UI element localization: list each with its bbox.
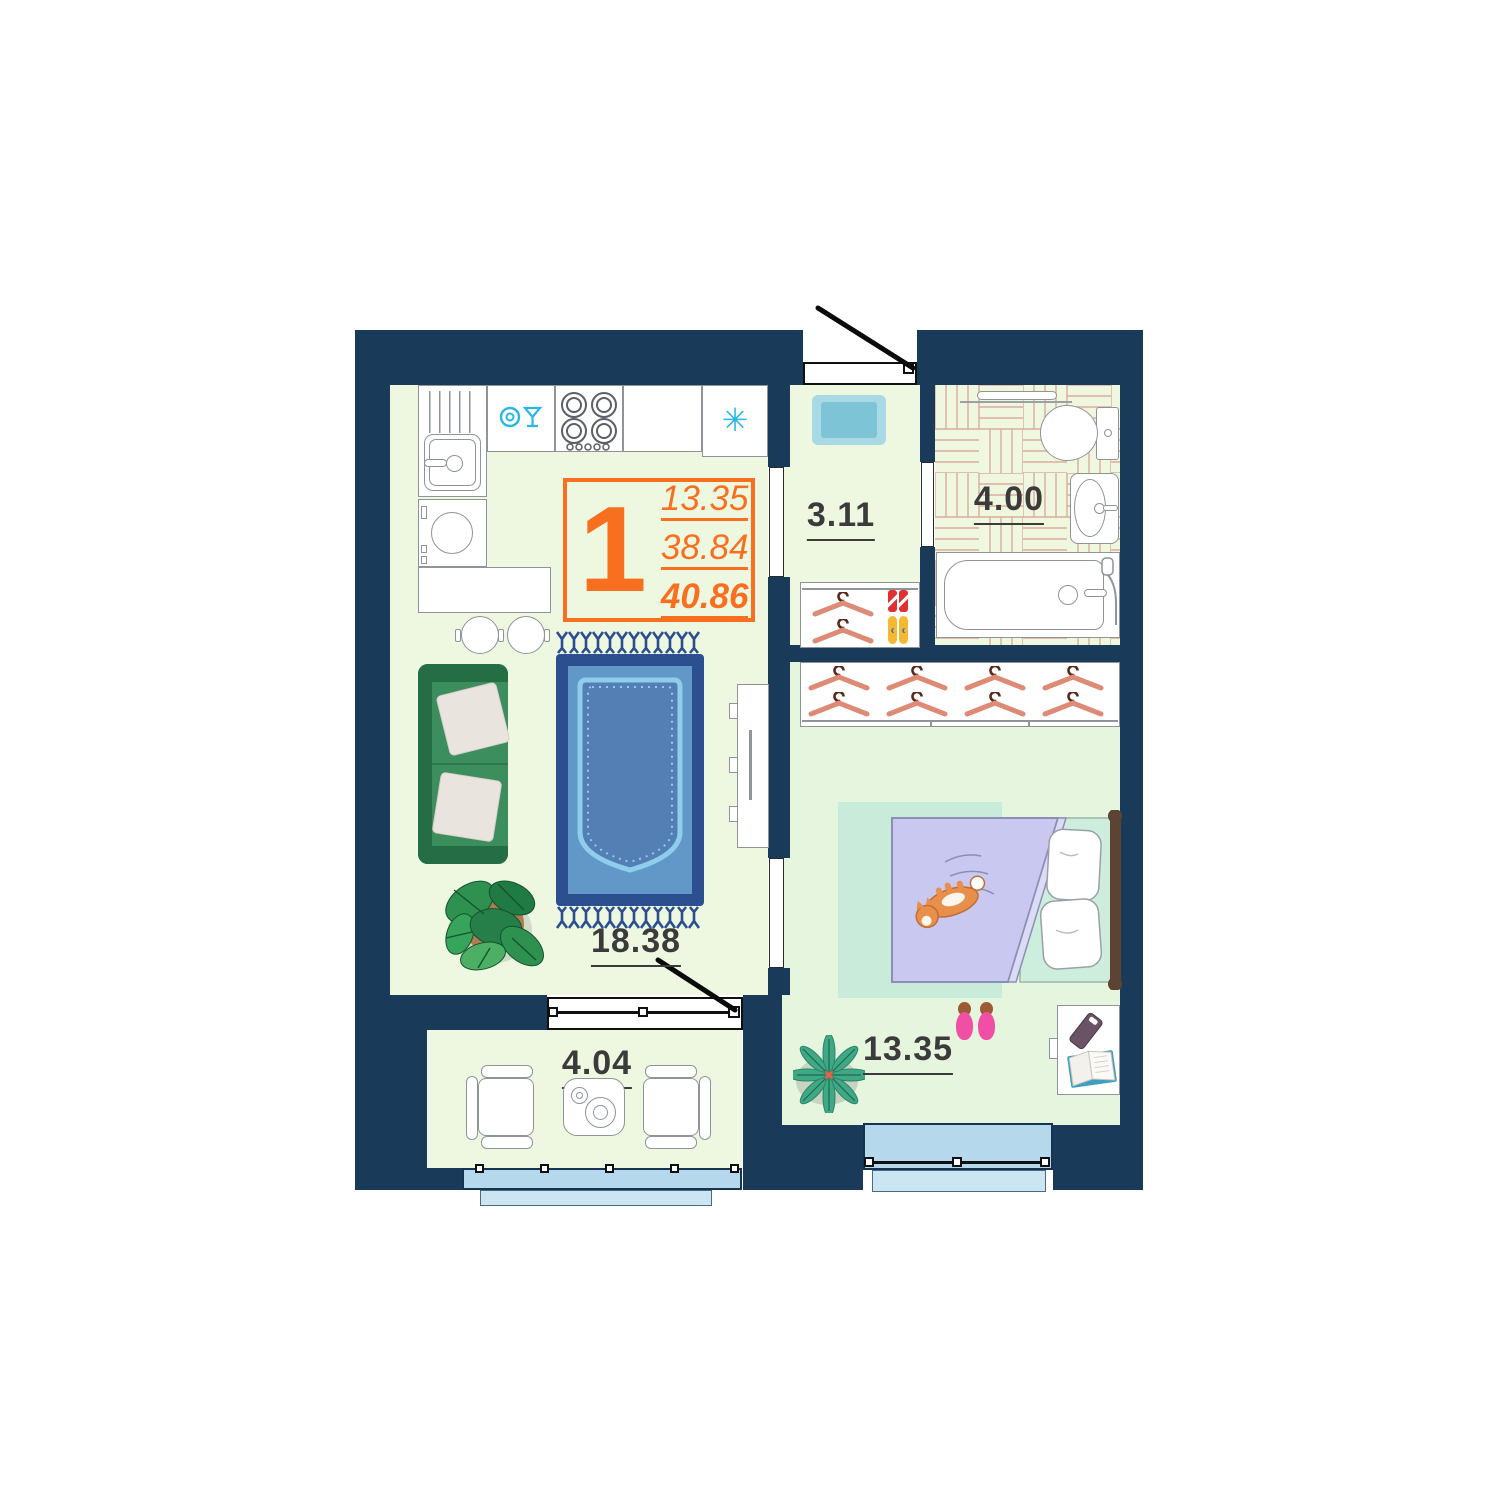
tv-console-handle xyxy=(749,730,752,800)
tv-bracket xyxy=(729,806,738,822)
label-kitchen-living: 18.38 xyxy=(591,922,681,967)
kitchen-stool-handle xyxy=(455,629,461,642)
bathtub-inner xyxy=(944,560,1104,630)
sofa-seat-divider xyxy=(432,763,508,765)
balcony-door-frame-mark xyxy=(638,1007,648,1017)
wall-inner-vertical-c xyxy=(768,968,790,995)
balcony-chair-left-armrest xyxy=(481,1065,533,1078)
hanger-icon xyxy=(812,619,874,644)
balcony-chair-right-armrest xyxy=(645,1136,697,1149)
floor-plan-canvas: ✳ 1 13.35 38.84 40.86 xyxy=(0,0,1500,1500)
wall-balcony-left xyxy=(355,1030,427,1190)
wardrobe-front-line xyxy=(802,720,1118,722)
wall-bedroom-bottom-a xyxy=(782,1125,863,1190)
wall-balcony-foot xyxy=(427,1168,462,1190)
wardrobe-door-tick xyxy=(930,720,932,727)
wall-living-bottom xyxy=(355,995,547,1030)
slipper xyxy=(899,590,908,612)
balcony-chair-left-seat xyxy=(478,1078,534,1136)
sofa-back xyxy=(418,664,432,864)
wall-hall-bath-upper xyxy=(920,385,935,462)
washing-machine-drum xyxy=(431,512,473,554)
slipper-pink xyxy=(956,1002,973,1040)
balcony-chair-right-armrest xyxy=(645,1065,697,1078)
wall-inner-vertical-b xyxy=(768,577,790,858)
hanger-icon xyxy=(808,692,870,717)
total-area-value: 40.86 xyxy=(661,579,749,619)
info-box: 1 13.35 38.84 40.86 xyxy=(563,478,755,622)
bedroom-plant-icon xyxy=(793,1035,865,1113)
entrance-door-swing-line xyxy=(808,300,920,372)
flipflop: ‹ xyxy=(899,616,908,644)
balcony-cup-large-inner xyxy=(593,1105,608,1120)
wall-right xyxy=(1120,330,1143,1190)
wall-bedroom-bottom-b xyxy=(1053,1125,1143,1190)
hanger-icon xyxy=(808,666,870,691)
slipper-pink xyxy=(978,1002,995,1040)
wall-left xyxy=(355,330,390,1030)
slippers-red-icon xyxy=(888,590,910,612)
bedroom-window-frame-mark xyxy=(864,1157,874,1167)
tv-console xyxy=(737,684,769,848)
bathtub-drain xyxy=(1058,585,1078,605)
sofa xyxy=(418,664,508,864)
hanger-icon xyxy=(886,692,948,717)
bathtub-shower-hose xyxy=(1098,556,1120,634)
hanger-icon xyxy=(886,666,948,691)
closet-hangers xyxy=(812,592,874,644)
hanger-icon xyxy=(812,592,874,617)
balcony-outer-sill xyxy=(480,1190,712,1206)
monstera-plant-icon xyxy=(438,872,550,980)
stove-burners xyxy=(555,385,623,452)
living-room-rug xyxy=(548,630,712,930)
desk-chair-back xyxy=(1049,1038,1058,1059)
hanger-icon xyxy=(964,692,1026,717)
wardrobe-door-tick xyxy=(1028,720,1030,727)
wall-bedroom-left xyxy=(743,995,782,1190)
wardrobe-hangers xyxy=(808,666,1120,717)
towel-rail xyxy=(977,391,1057,400)
bathroom-sink-faucet-spout xyxy=(1103,505,1118,511)
towel-rail-line xyxy=(960,401,1072,403)
kitchen-faucet-handle xyxy=(424,459,447,467)
fridge-snowflake-icon: ✳ xyxy=(718,402,752,438)
door-hallway-living xyxy=(769,467,784,577)
slippers-pink-icon xyxy=(956,1002,996,1042)
wall-top-right xyxy=(917,330,1143,385)
balcony-glazing xyxy=(462,1168,742,1190)
tv-bracket xyxy=(729,757,738,773)
wall-top-left xyxy=(355,330,803,385)
kitchen-counter-low xyxy=(418,567,551,613)
hanger-icon xyxy=(1042,666,1104,691)
door-bathroom xyxy=(921,462,934,547)
sofa-cushion xyxy=(432,772,503,843)
toilet-button xyxy=(1104,429,1112,437)
washing-machine-detail xyxy=(421,506,427,519)
flipflops-icon: ‹ ‹ xyxy=(888,616,910,644)
living-area-value: 13.35 xyxy=(661,481,749,521)
washing-machine-detail xyxy=(421,545,427,553)
balcony-chair-left-armrest xyxy=(481,1136,533,1149)
balcony-chair-right-back xyxy=(699,1076,711,1140)
bedroom-window-frame-mark xyxy=(1040,1157,1050,1167)
dishwasher-icon xyxy=(499,405,545,431)
label-hallway: 3.11 xyxy=(807,496,875,541)
bedroom-window-sill xyxy=(872,1170,1046,1192)
wall-inner-vertical-a xyxy=(768,385,790,467)
bed xyxy=(890,810,1125,990)
balcony-door-frame-mark xyxy=(548,1007,558,1017)
balcony-glazing-mark xyxy=(605,1164,614,1173)
tv-bracket xyxy=(729,703,738,719)
washing-machine-detail xyxy=(421,556,427,564)
kitchen-stool xyxy=(507,616,545,654)
balcony-glazing-mark xyxy=(670,1164,679,1173)
flipflop: ‹ xyxy=(888,616,897,644)
rooms-count: 1 xyxy=(579,498,647,602)
wall-hall-bath-lower xyxy=(920,547,935,648)
book-icon xyxy=(1066,1046,1118,1092)
kitchen-stool-handle xyxy=(498,629,504,642)
hanger-icon xyxy=(1042,692,1104,717)
bedroom-window-frame-mark xyxy=(952,1157,962,1167)
label-bedroom: 13.35 xyxy=(863,1030,953,1075)
balcony-chair-left-back xyxy=(466,1076,478,1140)
hallway-mat-inner xyxy=(821,402,877,438)
balcony-glazing-mark xyxy=(540,1164,549,1173)
kitchen-drying-rack xyxy=(429,391,479,433)
door-bedroom xyxy=(769,858,784,968)
kitchen-counter-empty xyxy=(623,385,702,452)
slipper xyxy=(888,590,897,612)
kitchen-faucet xyxy=(446,455,463,472)
phone-highlight xyxy=(1088,1016,1098,1025)
balcony-cup-small-inner xyxy=(576,1092,583,1099)
kitchen-stool xyxy=(461,616,499,654)
label-bathroom: 4.00 xyxy=(974,480,1044,525)
balcony-chair-right-seat xyxy=(643,1078,699,1136)
balcony-glazing-mark xyxy=(475,1164,484,1173)
hanger-icon xyxy=(964,666,1026,691)
balcony-glazing-mark xyxy=(730,1164,739,1173)
area-without-balcony-value: 38.84 xyxy=(661,530,749,570)
